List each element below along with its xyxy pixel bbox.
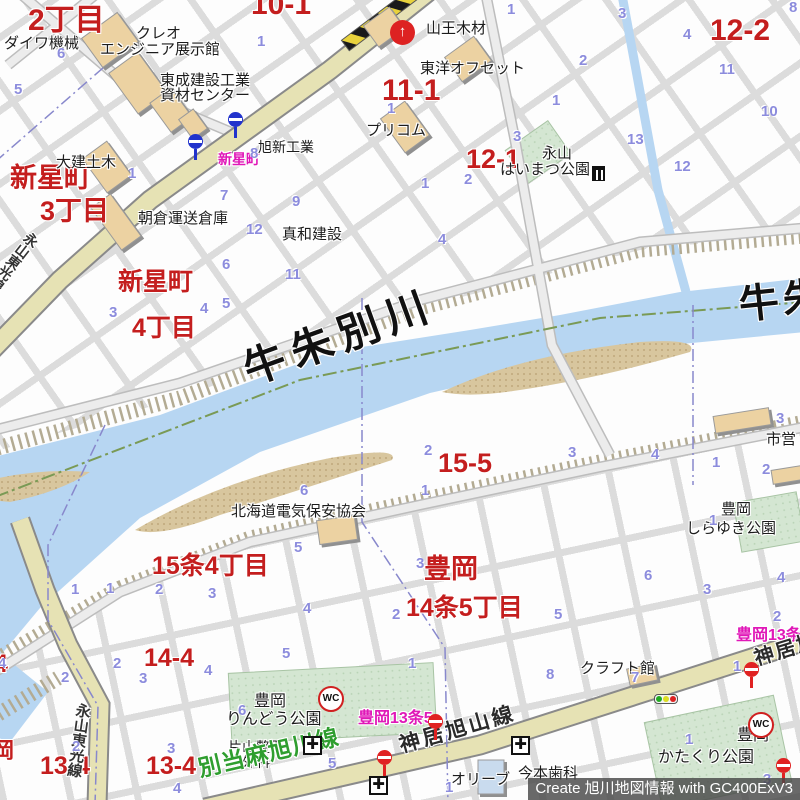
place-label: 山王木材 [426,21,486,36]
lot-number: 1 [709,513,717,528]
place-label: 市営 [766,432,796,447]
district-label: 豊岡 [424,556,478,583]
lot-number: 8 [546,667,554,682]
lot-number: 4 [303,601,311,616]
lot-number: 8 [250,146,258,161]
bus-stop-icon [744,662,759,688]
place-label: クレオ [136,26,181,41]
place-label: はいまつ公園 [500,162,590,177]
lot-number: 4 [204,663,212,678]
lot-number: 2 [61,670,69,685]
district-label: 15条4丁目 [152,554,269,579]
hospital-cross-icon: ✚ [303,736,322,755]
river-label: 牛朱 [737,277,800,326]
lot-number: 1 [552,93,560,108]
lot-number: 2 [392,607,400,622]
lot-number: 1 [128,166,136,181]
lot-number: 12 [674,159,691,174]
district-label: 14-4 [144,646,194,671]
lot-number: 4 [200,301,208,316]
place-label: プリコム [366,123,426,138]
lot-number: 1 [408,656,416,671]
lot-number: 5 [328,756,336,771]
bus-stop-icon [188,134,203,160]
credit-bar: Create 旭川地図情報 with GC400ExV3 [528,778,800,800]
lot-number: 10 [761,104,778,119]
hospital-cross-icon: ✚ [369,776,388,795]
toilet-icon: WC [748,712,774,738]
bus-stop-icon [228,112,243,138]
lot-number: 3 [139,671,147,686]
lot-number: 1 [387,101,395,116]
lot-number: 1 [445,780,453,795]
lot-number: 2 [113,656,121,671]
lot-number: 2 [424,443,432,458]
district-label: 14条5丁目 [406,596,523,621]
place-label: 東洋オフセット [420,61,525,76]
lot-number: 12 [246,222,263,237]
place-label: しらゆき公園 [686,521,776,536]
district-label: 4丁目 [132,316,196,341]
lot-number: 4 [777,570,785,585]
place-label: ダイワ機械 [4,36,79,51]
lot-number: 1 [421,176,429,191]
district-label: 3丁目 [40,198,109,225]
lot-number: 2 [773,609,781,624]
lot-number: 2 [579,53,587,68]
place-label: エンジニア展示館 [100,42,220,57]
lot-number: 2 [762,462,770,477]
lot-number: 3 [776,411,784,426]
lot-number: 3 [208,586,216,601]
place-label: 永山 [542,146,572,161]
place-label: 東成建設工業 [160,73,250,88]
lot-number: 3 [416,556,424,571]
lot-number: 5 [282,646,290,661]
lot-number: 5 [14,82,22,97]
lot-number: 1 [421,483,429,498]
place-label: 旭新工業 [258,140,314,154]
lot-number: 13 [627,132,644,147]
lot-number: 7 [220,188,228,203]
lot-number: 4 [438,232,446,247]
lot-number: 9 [292,194,300,209]
place-label: 朝倉運送倉庫 [138,211,228,226]
lot-number: 1 [257,34,265,49]
lot-number: 6 [644,568,652,583]
lot-number: 4 [0,656,6,671]
small-map-symbol-icon [592,166,605,181]
lot-number: 2 [72,739,80,754]
lot-number: 8 [789,0,797,15]
lot-number: 1 [685,732,693,747]
place-label: 資材センター [160,88,250,103]
lot-number: 2 [464,172,472,187]
hospital-cross-icon: ✚ [511,736,530,755]
place-label: クラフト館 [580,661,655,676]
district-label: 10-1 [251,0,311,20]
district-label: 新星町 [118,270,193,295]
lot-number: 4 [683,27,691,42]
lot-number: 1 [71,582,79,597]
lot-number: 1 [507,2,515,17]
lot-number: 4 [173,781,181,796]
river-label: 牛朱別川 [238,284,440,392]
place-label: 北海道電気保安協会 [231,504,366,519]
lot-number: 5 [222,296,230,311]
place-label: 大建土木 [56,155,116,170]
lot-number: 1 [712,455,720,470]
toilet-icon: WC [318,686,344,712]
lot-number: 3 [167,741,175,756]
district-label: 12-2 [710,16,770,46]
map-canvas[interactable]: 2丁目10-111-112-112-2新星町3丁目新星町4丁目15-515条4丁… [0,0,800,800]
lot-number: 3 [109,305,117,320]
lot-number: 1 [733,659,741,674]
lot-number: 7 [631,670,639,685]
bus-stop-label: 豊岡13条5 [358,711,433,727]
lot-number: 3 [568,445,576,460]
lot-number: 11 [285,267,301,282]
lot-number: 3 [618,6,626,21]
lot-number: 5 [294,540,302,555]
district-label: 2丁目 [28,6,105,36]
lot-number: 11 [719,62,735,77]
lot-number: 3 [513,129,521,144]
place-label: オリーブ [451,772,510,787]
place-label: 豊岡 [254,694,286,710]
lot-number: 4 [651,447,659,462]
bus-stop-icon [377,750,392,776]
lot-number: 5 [554,607,562,622]
bus-stop-icon [428,714,443,740]
lot-number: 1 [106,581,114,596]
red-circle-symbol-icon: ↑ [390,20,415,45]
place-label: 真和建設 [282,227,342,242]
district-label: 岡 [0,740,14,762]
lot-number: 6 [300,483,308,498]
lot-number: 6 [57,46,65,61]
road-label: 永山東光線 [0,230,41,294]
district-label: 13-4 [146,754,196,779]
traffic-light-icon [654,694,678,704]
label-overlay: 2丁目10-111-112-112-2新星町3丁目新星町4丁目15-515条4丁… [0,0,800,800]
district-label: 15-5 [438,450,492,477]
place-label: かたくり公園 [658,750,754,766]
lot-number: 6 [222,257,230,272]
lot-number: 6 [238,703,246,718]
place-label: 豊岡 [721,502,751,517]
lot-number: 2 [155,582,163,597]
lot-number: 3 [703,582,711,597]
